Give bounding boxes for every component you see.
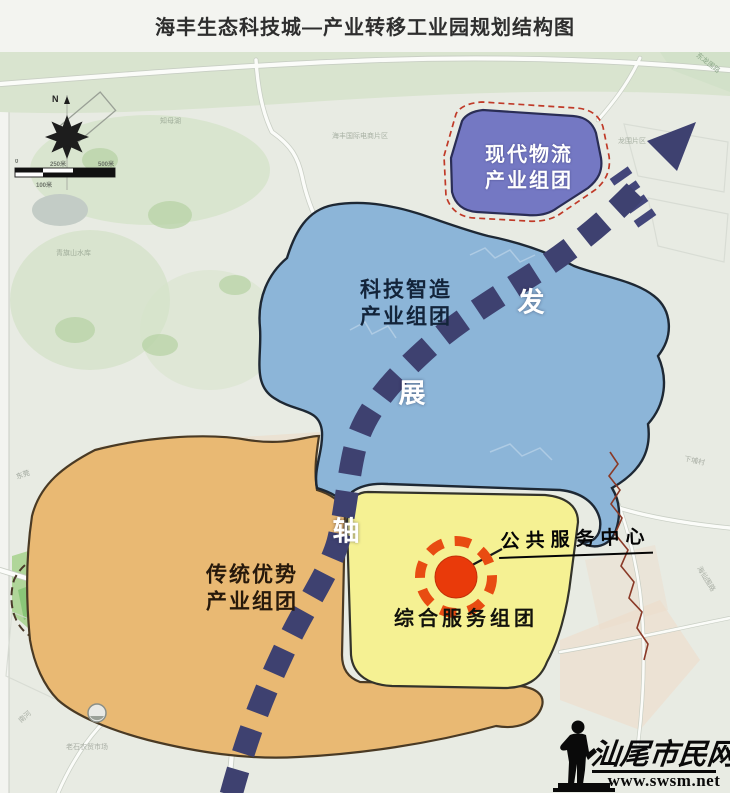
faint-map-label-1: 青旗山水库	[56, 248, 91, 258]
zone-service-label: 综合服务组团	[394, 606, 538, 632]
faint-map-label-4: 龙围片区	[618, 136, 646, 146]
scale-tick-100: 100米	[36, 180, 52, 189]
watermark-url: www.swsm.net	[608, 771, 721, 791]
watermark-site-name: 汕尾市民网	[589, 731, 730, 773]
axis-char-2: 轴	[333, 510, 360, 549]
zone-traditional-label-line2: 产业组团	[206, 589, 298, 616]
map-canvas	[0, 0, 730, 793]
faint-map-label-2: 知母湖	[160, 116, 181, 126]
axis-char-0: 发	[518, 281, 545, 320]
zone-logistics-label: 现代物流 产业组团	[485, 142, 573, 194]
faint-map-label-3: 海丰国际电商片区	[332, 131, 388, 141]
zone-tech-label: 科技智造 产业组团	[360, 277, 452, 332]
planning-map-page: 海丰生态科技城—产业转移工业园规划结构图 现代物流 产业组团 科技智造 产业组团…	[0, 0, 730, 793]
zone-logistics-label-line2: 产业组团	[485, 168, 573, 194]
scale-bar	[15, 168, 115, 177]
compass-north-label: N	[52, 94, 59, 104]
scale-tick-0: 0	[15, 159, 18, 165]
poi-center-dot	[435, 556, 477, 598]
scale-tick-500: 500米	[98, 159, 114, 168]
public-service-center-label: 公共服务中心	[498, 522, 653, 559]
zone-tech-label-line2: 产业组团	[360, 304, 452, 331]
scale-tick-250: 250米	[50, 159, 66, 168]
zone-logistics-label-line1: 现代物流	[485, 142, 573, 168]
landmark-circle-icon	[88, 704, 106, 722]
zone-traditional-label-line1: 传统优势	[206, 562, 298, 589]
page-title: 海丰生态科技城—产业转移工业园规划结构图	[0, 11, 730, 40]
faint-map-label-9: 老石农贸市场	[66, 742, 108, 752]
reservoir	[32, 194, 88, 226]
axis-char-1: 展	[399, 372, 426, 411]
zone-traditional-label: 传统优势 产业组团	[206, 562, 298, 617]
zone-tech-label-line1: 科技智造	[360, 277, 452, 304]
map-left-margin	[0, 52, 9, 793]
